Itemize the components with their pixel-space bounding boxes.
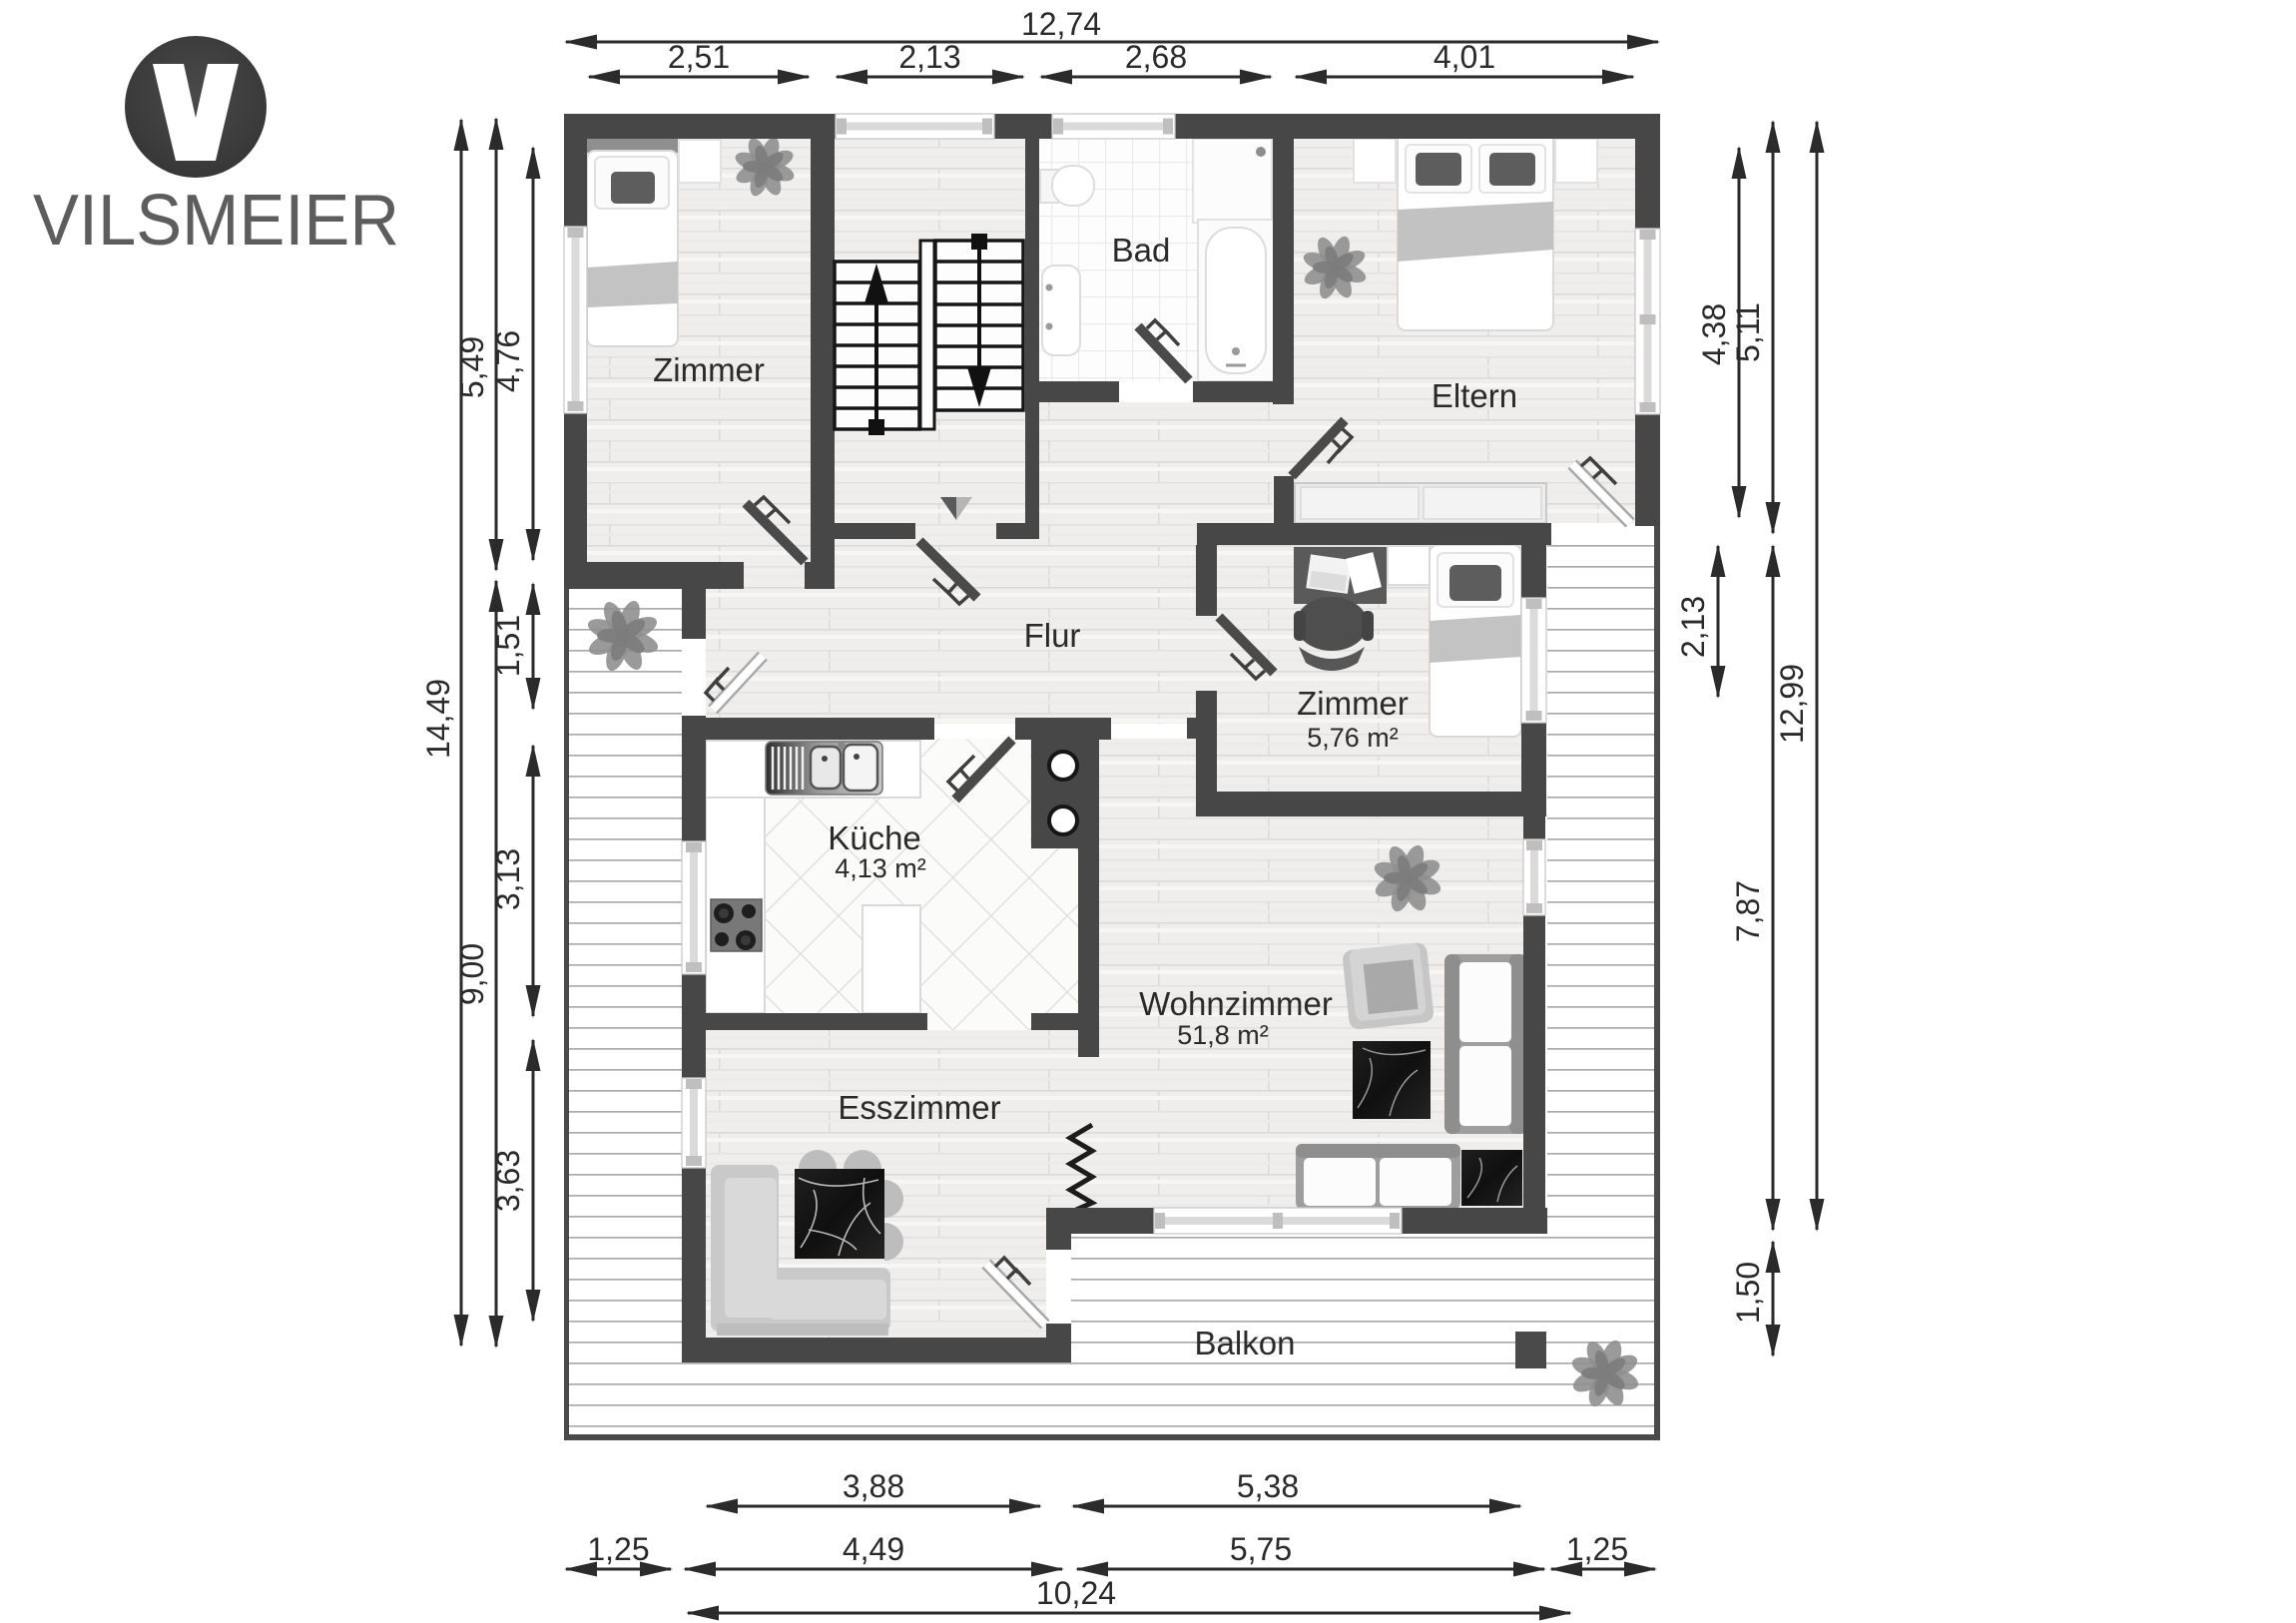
- svg-text:9,00: 9,00: [454, 943, 490, 1005]
- svg-text:10,24: 10,24: [1036, 1575, 1116, 1611]
- svg-text:1,25: 1,25: [1566, 1531, 1628, 1567]
- svg-text:1,51: 1,51: [490, 615, 526, 677]
- svg-text:Balkon: Balkon: [1195, 1325, 1296, 1361]
- svg-text:4,01: 4,01: [1434, 39, 1495, 75]
- svg-text:Bad: Bad: [1112, 232, 1171, 269]
- svg-text:4,38: 4,38: [1696, 303, 1732, 365]
- svg-text:2,13: 2,13: [898, 39, 960, 75]
- svg-text:4,49: 4,49: [843, 1531, 904, 1567]
- svg-text:5,75: 5,75: [1230, 1531, 1292, 1567]
- svg-text:Esszimmer: Esszimmer: [838, 1089, 1000, 1126]
- svg-text:5,38: 5,38: [1237, 1468, 1299, 1504]
- svg-text:1,50: 1,50: [1730, 1262, 1766, 1324]
- svg-text:5,49: 5,49: [454, 336, 490, 398]
- svg-text:12,74: 12,74: [1021, 6, 1101, 42]
- svg-text:3,13: 3,13: [490, 848, 526, 910]
- svg-text:4,13 m²: 4,13 m²: [835, 853, 926, 883]
- svg-text:Flur: Flur: [1024, 617, 1081, 654]
- svg-text:Zimmer: Zimmer: [653, 351, 765, 388]
- svg-text:12,99: 12,99: [1774, 664, 1810, 744]
- svg-text:2,51: 2,51: [668, 39, 730, 75]
- svg-text:3,63: 3,63: [490, 1150, 526, 1212]
- svg-text:51,8 m²: 51,8 m²: [1177, 1020, 1269, 1050]
- svg-text:Zimmer: Zimmer: [1297, 685, 1409, 722]
- svg-text:Küche: Küche: [828, 819, 921, 856]
- svg-text:4,76: 4,76: [490, 330, 526, 392]
- svg-text:2,68: 2,68: [1125, 39, 1187, 75]
- svg-text:2,13: 2,13: [1675, 596, 1711, 658]
- svg-text:1,25: 1,25: [587, 1531, 649, 1567]
- svg-text:3,88: 3,88: [843, 1468, 904, 1504]
- svg-text:Eltern: Eltern: [1432, 377, 1517, 414]
- svg-text:Wohnzimmer: Wohnzimmer: [1139, 985, 1333, 1022]
- svg-text:7,87: 7,87: [1730, 880, 1766, 942]
- svg-text:5,11: 5,11: [1730, 302, 1766, 362]
- svg-text:5,76 m²: 5,76 m²: [1307, 723, 1399, 753]
- svg-text:14,49: 14,49: [420, 679, 456, 759]
- svg-text:VILSMEIER: VILSMEIER: [33, 181, 399, 261]
